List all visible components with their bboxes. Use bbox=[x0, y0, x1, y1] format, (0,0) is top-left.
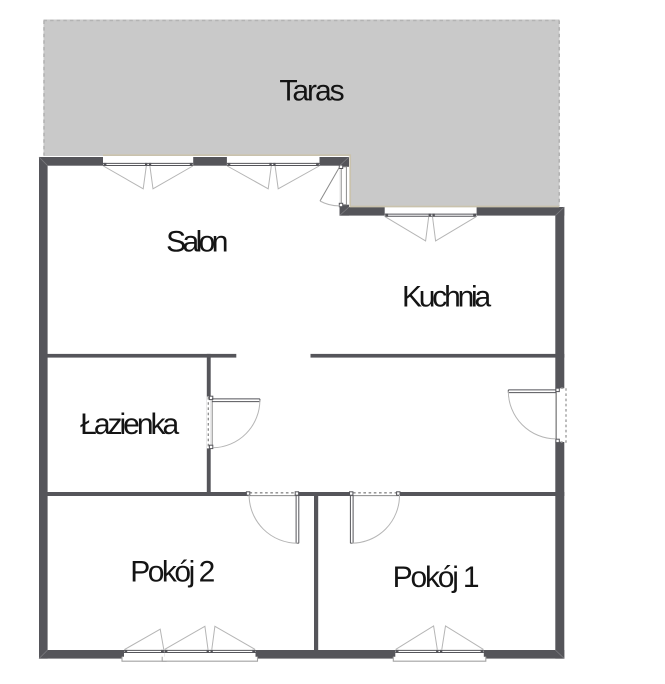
svg-text:Łazienka: Łazienka bbox=[80, 408, 179, 441]
svg-text:Pokój 1: Pokój 1 bbox=[393, 561, 479, 594]
svg-text:Taras: Taras bbox=[279, 75, 343, 108]
svg-text:Salon: Salon bbox=[166, 226, 227, 259]
svg-text:Kuchnia: Kuchnia bbox=[402, 281, 492, 314]
svg-text:Pokój 2: Pokój 2 bbox=[130, 555, 214, 588]
